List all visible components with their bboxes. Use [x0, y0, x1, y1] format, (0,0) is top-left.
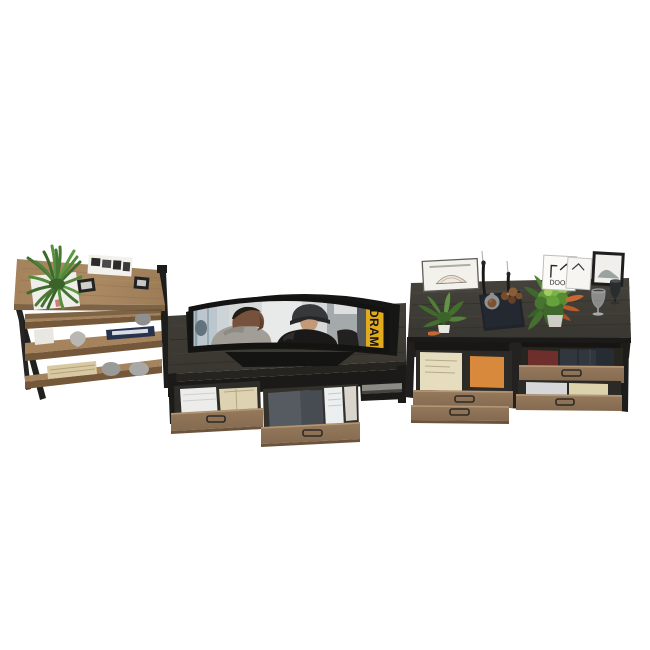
- svg-text:DRAM: DRAM: [367, 309, 381, 347]
